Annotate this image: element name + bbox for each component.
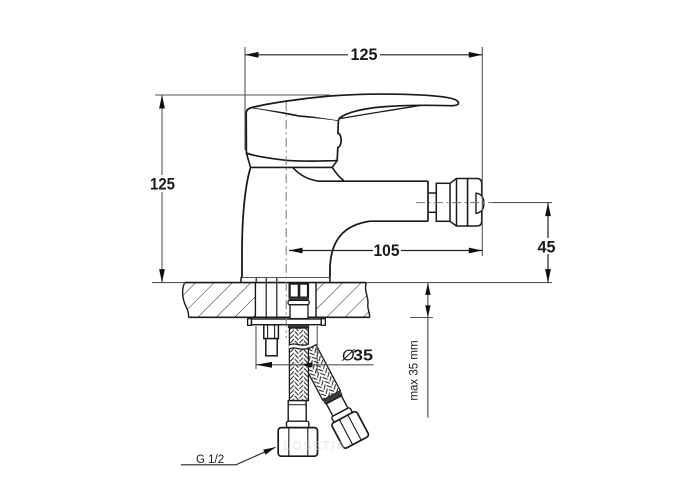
svg-text:G 1/2: G 1/2 bbox=[196, 454, 224, 466]
svg-text:max 35 mm: max 35 mm bbox=[409, 340, 421, 400]
svg-text:125: 125 bbox=[150, 175, 175, 194]
svg-text:105: 105 bbox=[374, 241, 400, 260]
svg-text:LOSETIA: LOSETIA bbox=[283, 438, 346, 453]
svg-text:45: 45 bbox=[538, 238, 556, 257]
svg-text:125: 125 bbox=[351, 45, 378, 64]
svg-text:35: 35 bbox=[353, 348, 373, 365]
